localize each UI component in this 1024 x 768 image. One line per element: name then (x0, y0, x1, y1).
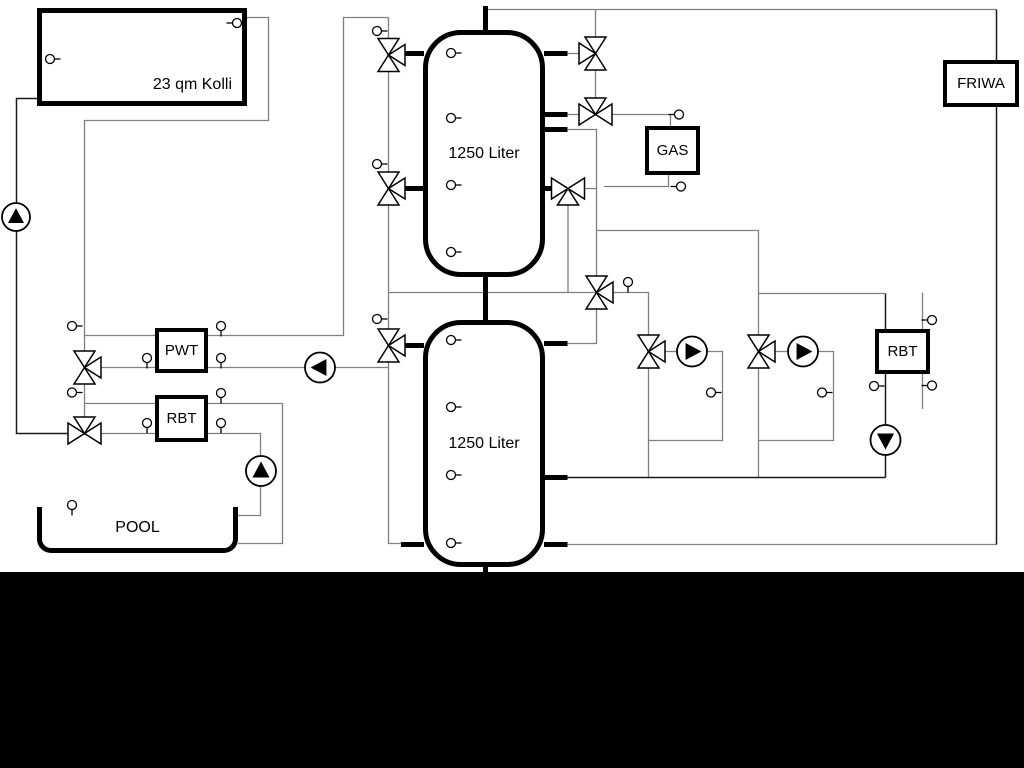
tank-bottom-label: 1250 Liter (448, 436, 519, 452)
pipe (567, 54, 579, 115)
gas-boiler-box: GAS (645, 126, 700, 175)
hydraulic-schematic: 23 qm Kolli 1250 Liter 1250 Liter GAS FR… (0, 0, 1024, 768)
temperature-sensor-icon (624, 278, 633, 293)
letterbox-bar (0, 572, 1024, 768)
temperature-sensor-icon (217, 354, 226, 369)
pool-basin: POOL (37, 507, 238, 553)
temperature-sensor-icon (870, 382, 885, 391)
rbt-right-label: RBT (888, 344, 918, 359)
three-way-valve-icon (74, 351, 101, 384)
collector-label: 23 qm Kolli (153, 77, 232, 93)
pool-label: POOL (115, 520, 159, 536)
pipe (612, 115, 671, 127)
pipe (389, 18, 425, 544)
temperature-sensor-icon (707, 388, 722, 397)
three-way-valve-icon (378, 39, 405, 72)
temperature-sensor-icon (217, 322, 226, 337)
pump-icon-down (871, 425, 901, 455)
three-way-valve-icon (748, 335, 775, 368)
temperature-sensor-icon (818, 388, 833, 397)
pipe (604, 175, 669, 187)
temperature-sensor-icon (671, 182, 686, 191)
temperature-sensor-icon (373, 27, 388, 36)
three-way-valve-icon (378, 329, 405, 362)
solar-collector-box: 23 qm Kolli (37, 8, 247, 106)
three-way-valve-icon (68, 417, 101, 444)
pump-icon-right (677, 337, 707, 367)
temperature-sensor-icon (217, 389, 226, 404)
friwa-label: FRIWA (957, 76, 1005, 91)
pwt-label: PWT (165, 343, 198, 358)
three-way-valve-icon (579, 37, 606, 70)
temperature-sensor-icon (143, 419, 152, 434)
temperature-sensor-icon (68, 388, 83, 397)
pwt-heat-exchanger-box: PWT (155, 328, 208, 373)
temperature-sensor-icon (373, 315, 388, 324)
three-way-valve-icon (579, 98, 612, 125)
temperature-sensor-icon (143, 354, 152, 369)
temperature-sensor-icon (217, 419, 226, 434)
temperature-sensor-icon (68, 322, 83, 331)
gas-label: GAS (657, 143, 689, 158)
pump-icon-up (246, 456, 276, 486)
rbt-heating-exchanger-box: RBT (875, 329, 930, 374)
buffer-tank-top: 1250 Liter (423, 30, 545, 277)
friwa-station-box: FRIWA (943, 60, 1019, 107)
rbt-left-label: RBT (167, 411, 197, 426)
three-way-valve-icon (552, 178, 585, 205)
three-way-valve-icon (378, 172, 405, 205)
buffer-tank-bottom: 1250 Liter (423, 320, 545, 567)
three-way-valve-icon (638, 335, 665, 368)
pipe (17, 99, 68, 434)
tank-top-label: 1250 Liter (448, 146, 519, 162)
rbt-pool-exchanger-box: RBT (155, 395, 208, 442)
temperature-sensor-icon (922, 316, 937, 325)
pipe (567, 130, 597, 344)
pump-icon-left (305, 353, 335, 383)
pump-icon-right (788, 337, 818, 367)
temperature-sensor-icon (373, 160, 388, 169)
temperature-sensor-icon (922, 381, 937, 390)
pump-icon-up (2, 203, 30, 231)
